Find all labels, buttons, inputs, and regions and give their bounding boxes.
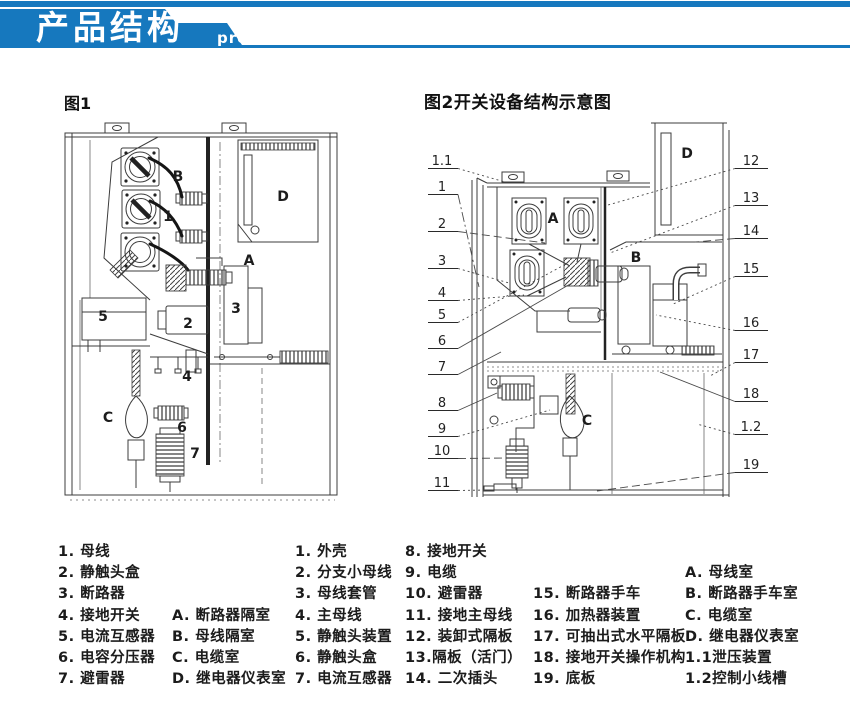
fig1-relay-compartment	[210, 140, 330, 488]
fig2-divider-plate	[487, 362, 723, 371]
callout-19: 19	[597, 458, 768, 491]
legend-item: 1.1泄压装置	[685, 650, 772, 667]
diagram-label: 16	[743, 316, 760, 331]
bushing-icon	[564, 198, 598, 244]
legend-item: 5. 电流互感器	[58, 629, 155, 646]
diagram-label: 11	[434, 476, 451, 491]
diagram-label: 4	[438, 286, 446, 301]
legend-item: 6. 静触头盒	[295, 650, 377, 667]
diagram-label: 2	[183, 316, 193, 332]
legend-item: B. 断路器手车室	[685, 586, 798, 603]
legend-item: 9. 电缆	[405, 565, 457, 582]
diagram-label: 1	[438, 180, 446, 195]
page-title: 产品结构	[36, 11, 184, 45]
legend-item: 4. 接地开关	[58, 608, 140, 625]
diagram-label: 9	[438, 422, 446, 437]
legend-item: 1. 母线	[58, 544, 110, 561]
legend-item: 6. 电容分压器	[58, 650, 155, 667]
diagram-label: 2	[438, 217, 446, 232]
legend-item: 1.2控制小线槽	[685, 671, 787, 688]
fig2-relay-room	[651, 123, 727, 235]
figure2-diagram: ABCD 1.11234567891011 121314151617181.21…	[425, 110, 850, 530]
diagram-label: 14	[743, 224, 760, 239]
diagram-label: 6	[177, 420, 187, 436]
leader-line	[458, 458, 505, 459]
diagram-label: 7	[438, 360, 446, 375]
diagram-label: 5	[98, 309, 108, 325]
diagram-label: 3	[231, 301, 241, 317]
legend-item: 18. 接地开关操作机构	[533, 650, 686, 667]
legend-item: A. 母线室	[685, 565, 754, 582]
diagram-label: 6	[438, 334, 446, 349]
page-subtitle: product mix	[217, 29, 330, 47]
diagram-label: 17	[743, 348, 760, 363]
diagram-label: A	[548, 211, 559, 227]
diagram-label: 10	[434, 444, 451, 459]
diagram-label: 5	[438, 308, 446, 323]
legend-item: 12. 装卸式隔板	[405, 629, 513, 646]
fig2-busbar-room	[497, 187, 628, 360]
diagram-label: B	[173, 169, 184, 185]
callout-13: 13	[610, 191, 768, 253]
callout-2: 2	[428, 217, 545, 243]
callout-10: 10	[428, 444, 505, 459]
diagram-label: C	[582, 413, 592, 429]
legend-item: A. 断路器隔室	[172, 608, 271, 625]
legend-item: B. 母线隔室	[172, 629, 255, 646]
diagram-label: 19	[743, 458, 760, 473]
legend-item: 16. 加热器装置	[533, 608, 641, 625]
callout-18: 18	[660, 372, 768, 402]
legend-item: D. 继电器仪表室	[685, 629, 799, 646]
diagram-label: B	[631, 250, 642, 266]
document-page: 产品结构 product mix 图1 图2开关设备结构示意图	[0, 0, 850, 728]
callout-11: 11	[428, 476, 488, 491]
legend-item: 3. 母线套管	[295, 586, 377, 603]
callout-8: 8	[428, 393, 497, 411]
diagram-label: 4	[182, 369, 192, 385]
legend-item: 17. 可抽出式水平隔板	[533, 629, 686, 646]
banner-top-strip	[0, 1, 850, 7]
legend-item: 5. 静触头装置	[295, 629, 392, 646]
diagram-label: 7	[190, 446, 200, 462]
diagram-label: 1	[163, 209, 173, 225]
diagram-label: D	[277, 189, 289, 205]
bushing-icon	[121, 148, 159, 186]
leader-line	[597, 473, 735, 492]
legend-item: 15. 断路器手车	[533, 586, 641, 603]
fig2-callouts-right: 121314151617181.219	[597, 154, 768, 491]
diagram-label: 8	[438, 396, 446, 411]
fig1-cable-compartment	[72, 300, 188, 492]
fig2-cable-room	[488, 373, 704, 494]
legend-item: 2. 分支小母线	[295, 565, 392, 582]
legend-item: 10. 避雷器	[405, 586, 483, 603]
fig2-callouts-left: 1.11234567891011	[428, 154, 572, 491]
leader-line	[671, 277, 735, 306]
legend-item: 7. 电流互感器	[295, 671, 392, 688]
leader-line	[458, 295, 524, 301]
legend-item: 1. 外壳	[295, 544, 347, 561]
diagram-label: 1.1	[432, 154, 453, 169]
bushing-icon	[512, 198, 546, 244]
bushing-icon	[510, 250, 544, 296]
diagram-label: 12	[743, 154, 760, 169]
diagram-label: 1.2	[741, 420, 762, 435]
diagram-label: C	[103, 410, 113, 426]
diagram-label: 3	[438, 254, 446, 269]
diagram-label: 15	[743, 262, 760, 277]
bushing-icon	[110, 233, 159, 278]
fig2-breaker-room	[610, 242, 722, 355]
legend-item: 7. 避雷器	[58, 671, 125, 688]
legend-item: 2. 静触头盒	[58, 565, 140, 582]
leader-line	[458, 490, 488, 491]
leader-line	[610, 206, 735, 254]
bushing-icon	[122, 190, 160, 228]
leader-line	[458, 195, 479, 288]
diagram-label: 13	[743, 191, 760, 206]
banner-underline	[240, 45, 850, 48]
diagram-label: 18	[743, 387, 760, 402]
callout-14: 14	[695, 224, 768, 242]
legend-item: C. 电缆室	[172, 650, 240, 667]
legend-item: 3. 断路器	[58, 586, 125, 603]
callout-16: 16	[656, 315, 768, 331]
legend-item: C. 电缆室	[685, 608, 753, 625]
leader-line	[660, 372, 735, 402]
legend-item: 19. 底板	[533, 671, 596, 688]
callout-1.1: 1.1	[428, 154, 505, 182]
callout-7: 7	[428, 352, 501, 375]
legend-item: 14. 二次插头	[405, 671, 498, 688]
legend-item: 8. 接地开关	[405, 544, 487, 561]
leader-line	[458, 352, 501, 375]
legend-item: 13.隔板（活门）	[405, 650, 522, 667]
callout-1.2: 1.2	[697, 420, 768, 435]
legend-item: 11. 接地主母线	[405, 608, 513, 625]
legend-item: D. 继电器仪表室	[172, 671, 286, 688]
callout-6: 6	[428, 283, 572, 349]
legend-item: 4. 主母线	[295, 608, 362, 625]
diagram-label: D	[681, 146, 693, 162]
diagram-label: A	[244, 253, 255, 269]
figure1-diagram: B1DA5234C67	[50, 110, 350, 530]
callout-9: 9	[428, 410, 550, 437]
